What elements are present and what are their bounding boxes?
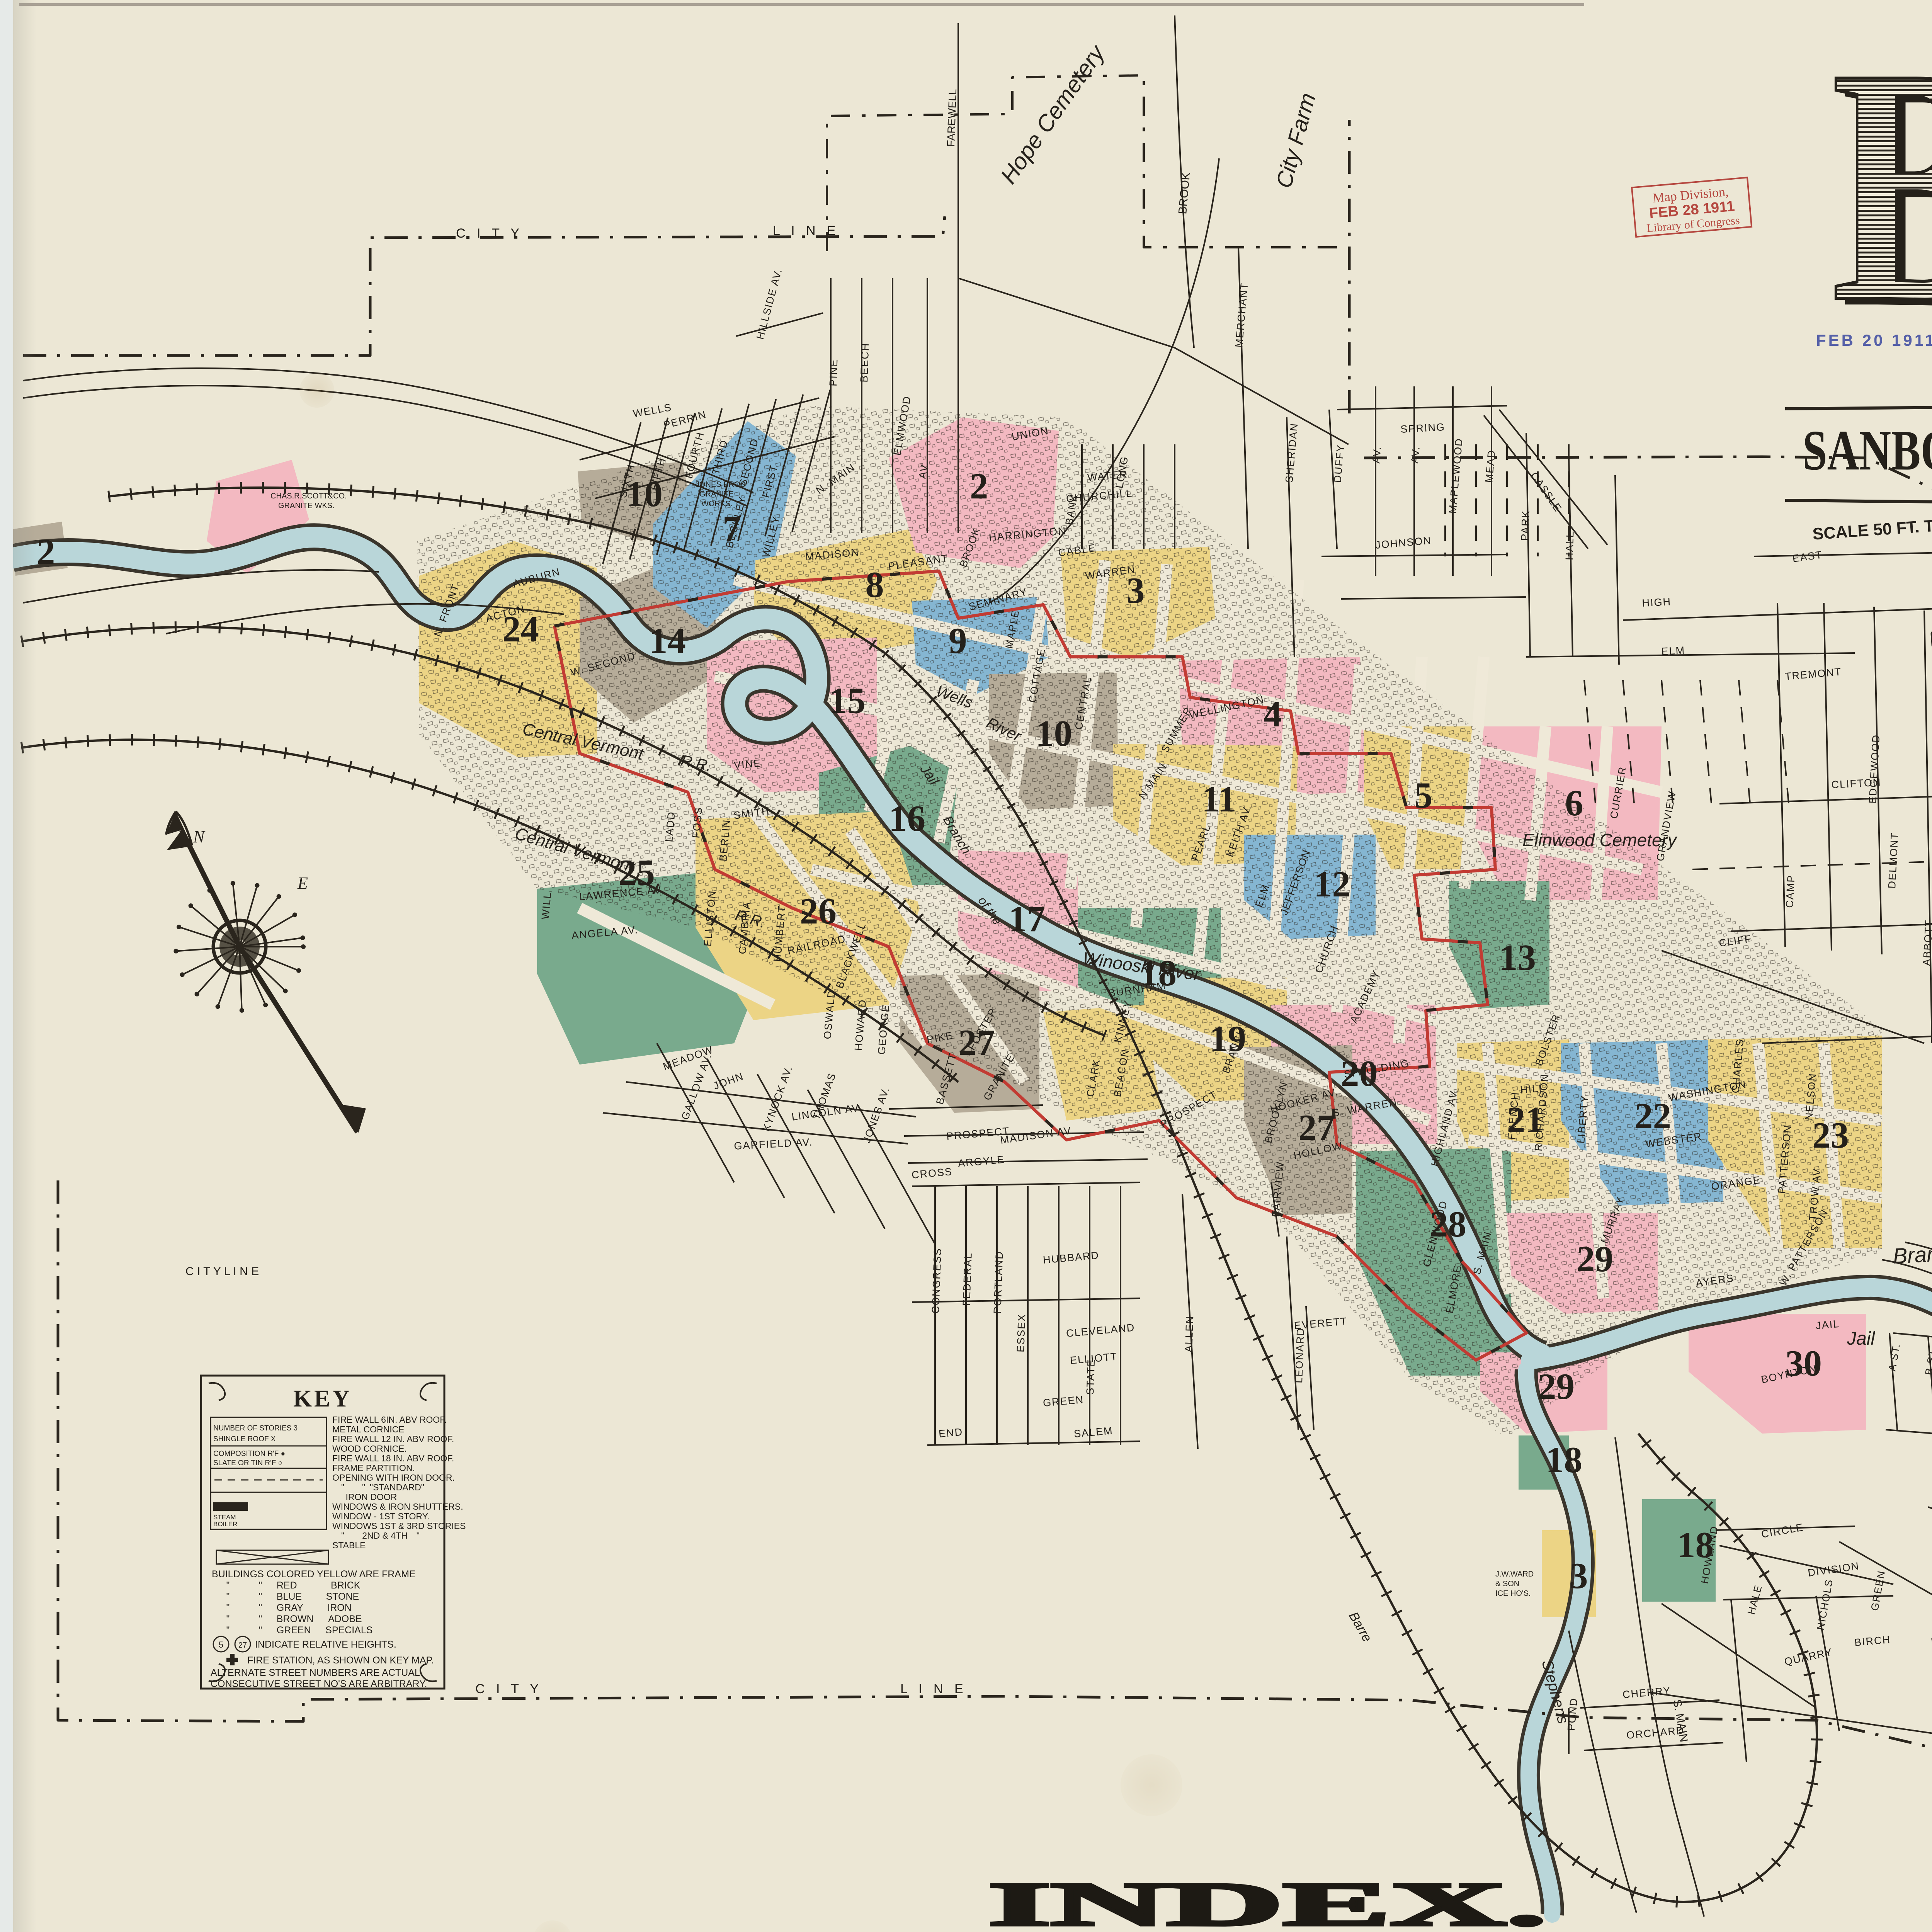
svg-text:JAIL: JAIL (1815, 1318, 1840, 1332)
svg-text:CIRCLE: CIRCLE (1760, 1521, 1805, 1540)
svg-text:Barre: Barre (1346, 1609, 1374, 1645)
svg-text:11: 11 (1202, 779, 1236, 820)
svg-text:CLEVELAND: CLEVELAND (1066, 1322, 1136, 1339)
svg-text:JONES AV.: JONES AV. (861, 1085, 892, 1145)
svg-text:INDICATE RELATIVE HEIGHTS.: INDICATE RELATIVE HEIGHTS. (255, 1639, 396, 1650)
svg-text:ICE HO'S.: ICE HO'S. (1495, 1589, 1531, 1598)
svg-text:ALTERNATE STREET NUMBERS ARE A: ALTERNATE STREET NUMBERS ARE ACTUAL (211, 1667, 420, 1678)
svg-text:CROSS: CROSS (911, 1166, 953, 1181)
svg-text:OPENING WITH IRON DOOR.: OPENING WITH IRON DOOR. (332, 1473, 455, 1483)
svg-text:C I T Y: C I T Y (456, 226, 523, 241)
svg-text:ABBOTT: ABBOTT (1921, 919, 1932, 966)
svg-text:" " BLUE STONE: " " BLUE STONE (212, 1591, 359, 1602)
svg-text:BROOK: BROOK (1176, 172, 1192, 215)
svg-text:POND: POND (1565, 1697, 1580, 1731)
svg-text:18: 18 (1546, 1439, 1582, 1480)
svg-text:SCALE 50 FT. TO AN INCH: SCALE 50 FT. TO AN INCH (1812, 510, 1932, 543)
svg-text:Branch: Branch (1892, 1240, 1932, 1268)
svg-text:CONGRESS: CONGRESS (930, 1248, 944, 1314)
svg-text:END: END (938, 1426, 963, 1440)
svg-text:GREEN: GREEN (1043, 1394, 1084, 1409)
svg-text:HALL: HALL (1563, 531, 1576, 561)
svg-text:L I N E: L I N E (900, 1682, 967, 1696)
svg-text:CHERRY: CHERRY (1622, 1685, 1672, 1701)
svg-text:29: 29 (1538, 1366, 1575, 1407)
svg-text:EAST: EAST (1792, 549, 1823, 565)
svg-text:AV.: AV. (1409, 446, 1422, 464)
svg-text:" 2ND & 4TH ": " 2ND & 4TH " (332, 1531, 420, 1541)
svg-text:SHERIDAN: SHERIDAN (1283, 422, 1300, 483)
svg-text:3: 3 (1570, 1555, 1588, 1596)
svg-text:JOHN: JOHN (712, 1070, 745, 1092)
svg-text:15: 15 (829, 680, 866, 721)
svg-text:10: 10 (1036, 713, 1072, 754)
svg-text:SHINGLE ROOF X: SHINGLE ROOF X (213, 1435, 276, 1443)
svg-text:SANBORN: SANBORN (1803, 419, 1932, 482)
svg-text:QUARRY: QUARRY (1783, 1646, 1833, 1668)
svg-text:" " "STANDARD": " " "STANDARD" (332, 1482, 424, 1492)
svg-text:PINE: PINE (827, 359, 840, 386)
svg-text:5: 5 (1414, 775, 1433, 816)
svg-text:12: 12 (1314, 864, 1350, 905)
svg-text:" " GREEN SPECIALS: " " GREEN SPECIALS (212, 1625, 372, 1636)
svg-text:HUBBARD: HUBBARD (1043, 1249, 1100, 1266)
svg-text:FRAME PARTITION.: FRAME PARTITION. (332, 1463, 415, 1473)
svg-text:FEDERAL: FEDERAL (961, 1252, 974, 1306)
svg-text:ORCHARD: ORCHARD (1626, 1725, 1685, 1741)
svg-text:2: 2 (970, 466, 988, 507)
svg-text:B ST.: B ST. (1923, 1345, 1932, 1376)
svg-text:6: 6 (1565, 782, 1583, 823)
svg-text:JOHNSON: JOHNSON (1375, 534, 1432, 551)
svg-text:ELM: ELM (1661, 645, 1685, 657)
svg-text:" " BROWN ADOBE: " " BROWN ADOBE (212, 1614, 362, 1624)
svg-text:" " RED BRICK: " " RED BRICK (212, 1580, 361, 1591)
svg-text:E: E (297, 874, 308, 893)
svg-text:26: 26 (800, 891, 837, 932)
svg-text:INDEX.: INDEX. (988, 1870, 1547, 1932)
svg-text:L I N E: L I N E (773, 223, 840, 238)
svg-text:SPRING: SPRING (1400, 421, 1446, 435)
svg-text:" " GRAY IRON: " " GRAY IRON (212, 1602, 352, 1613)
svg-text:14: 14 (649, 620, 686, 661)
svg-text:2: 2 (37, 531, 55, 572)
svg-text:GRANITE WKS.: GRANITE WKS. (278, 502, 335, 510)
svg-text:WORKS.: WORKS. (701, 500, 733, 508)
svg-text:WELLS: WELLS (632, 401, 673, 420)
svg-text:WINDOWS & IRON SHUTTERS.: WINDOWS & IRON SHUTTERS. (332, 1502, 463, 1512)
svg-text:WILL: WILL (539, 891, 553, 920)
svg-text:CASSLE: CASSLE (1528, 470, 1564, 514)
svg-text:22: 22 (1634, 1095, 1671, 1136)
svg-text:J.W.WARD: J.W.WARD (1495, 1570, 1534, 1578)
svg-text:COMPOSITION R'F ●: COMPOSITION R'F ● (213, 1450, 285, 1458)
svg-text:C I T Y L I N E: C I T Y L I N E (185, 1265, 259, 1278)
svg-text:N: N (193, 827, 206, 846)
svg-text:WINDOW - 1ST STORY.: WINDOW - 1ST STORY. (332, 1511, 429, 1521)
svg-text:PARK: PARK (1519, 510, 1532, 541)
svg-text:MEAD: MEAD (1483, 449, 1497, 483)
svg-text:CONSECUTIVE STREET NO'S ARE AR: CONSECUTIVE STREET NO'S ARE ARBITRARY. (211, 1679, 427, 1689)
svg-text:AV.: AV. (1370, 446, 1383, 464)
svg-text:BIRCH: BIRCH (1854, 1634, 1891, 1648)
svg-text:VINE: VINE (733, 757, 762, 771)
svg-text:GARFIELD AV.: GARFIELD AV. (734, 1136, 813, 1152)
svg-text:City Farm: City Farm (1271, 90, 1321, 191)
svg-text:NUMBER OF STORIES 3: NUMBER OF STORIES 3 (213, 1424, 298, 1432)
svg-text:& SON: & SON (1495, 1580, 1519, 1588)
svg-text:23: 23 (1812, 1115, 1849, 1156)
svg-text:GREEN: GREEN (1869, 1569, 1887, 1612)
svg-text:BOILER: BOILER (213, 1520, 237, 1528)
svg-text:FEB 20 1911: FEB 20 1911 (1816, 331, 1932, 349)
svg-text:MADISON AV.: MADISON AV. (1000, 1124, 1075, 1146)
svg-text:Barre: Barre (1832, 0, 1932, 371)
svg-text:MAPLEWOOD: MAPLEWOOD (1447, 437, 1465, 514)
svg-text:HIGH: HIGH (1642, 596, 1672, 609)
svg-text:CHAS.R.SCOTT&CO.: CHAS.R.SCOTT&CO. (270, 492, 347, 500)
svg-text:DELMONT: DELMONT (1886, 832, 1901, 889)
svg-text:Elinwood Cemetery: Elinwood Cemetery (1522, 830, 1678, 850)
svg-text:HILLSIDE AV.: HILLSIDE AV. (754, 267, 784, 340)
svg-text:16: 16 (889, 798, 925, 839)
svg-text:METAL CORNICE: METAL CORNICE (332, 1424, 405, 1434)
svg-text:IRON DOOR: IRON DOOR (332, 1492, 397, 1502)
svg-text:Hope Cemetery: Hope Cemetery (995, 39, 1111, 189)
svg-text:4: 4 (1264, 694, 1282, 735)
svg-text:27: 27 (238, 1641, 247, 1650)
svg-text:GRANITE: GRANITE (699, 490, 734, 498)
svg-text:FAREWELL: FAREWELL (945, 89, 959, 147)
svg-text:CAMP: CAMP (1784, 874, 1797, 908)
svg-text:MERCHANT: MERCHANT (1233, 282, 1250, 348)
svg-text:SALEM: SALEM (1073, 1425, 1114, 1440)
svg-text:WINDOWS 1ST & 3RD STORIES: WINDOWS 1ST & 3RD STORIES (332, 1521, 466, 1531)
svg-text:Jail: Jail (1847, 1328, 1875, 1349)
svg-text:9: 9 (949, 620, 967, 661)
svg-text:FIRE WALL 12 IN. ABV ROOF.: FIRE WALL 12 IN. ABV ROOF. (332, 1434, 454, 1444)
svg-text:FIRE WALL 6IN. ABV ROOF.: FIRE WALL 6IN. ABV ROOF. (332, 1415, 447, 1425)
svg-text:17: 17 (1009, 898, 1045, 939)
svg-text:EDGEWOOD: EDGEWOOD (1867, 734, 1882, 804)
svg-text:ESSEX: ESSEX (1015, 1313, 1027, 1352)
svg-text:STEAM: STEAM (213, 1514, 236, 1521)
svg-text:KEY: KEY (293, 1386, 352, 1412)
svg-text:ARGYLE: ARGYLE (957, 1153, 1005, 1169)
svg-text:5: 5 (219, 1640, 223, 1650)
svg-text:DUFFY: DUFFY (1332, 444, 1347, 483)
svg-text:TREMONT: TREMONT (1784, 666, 1842, 682)
svg-text:13: 13 (1499, 937, 1536, 978)
svg-text:DIVISION: DIVISION (1807, 1560, 1860, 1579)
svg-text:ALLEN: ALLEN (1183, 1315, 1196, 1353)
svg-text:FIRE WALL 18 IN. ABV ROOF.: FIRE WALL 18 IN. ABV ROOF. (332, 1453, 454, 1463)
svg-text:3: 3 (1126, 570, 1145, 611)
svg-text:SLATE OR TIN R'F ○: SLATE OR TIN R'F ○ (213, 1459, 282, 1467)
svg-text:BUILDINGS COLORED YELLOW ARE F: BUILDINGS COLORED YELLOW ARE FRAME (212, 1569, 415, 1580)
svg-text:PORTLAND: PORTLAND (992, 1251, 1005, 1314)
svg-text:LEONARD: LEONARD (1293, 1327, 1306, 1383)
svg-text:C I T Y: C I T Y (475, 1682, 543, 1696)
svg-text:WOOD CORNICE.: WOOD CORNICE. (332, 1444, 407, 1454)
svg-text:STABLE: STABLE (332, 1540, 366, 1550)
svg-text:STATE: STATE (1084, 1359, 1097, 1395)
svg-text:A ST.: A ST. (1886, 1342, 1902, 1372)
svg-text:BEECH: BEECH (858, 342, 871, 383)
svg-text:27: 27 (1298, 1107, 1335, 1148)
svg-text:8: 8 (866, 564, 884, 605)
svg-text:FIRE STATION, AS SHOWN ON KEY: FIRE STATION, AS SHOWN ON KEY MAP. (247, 1655, 434, 1666)
